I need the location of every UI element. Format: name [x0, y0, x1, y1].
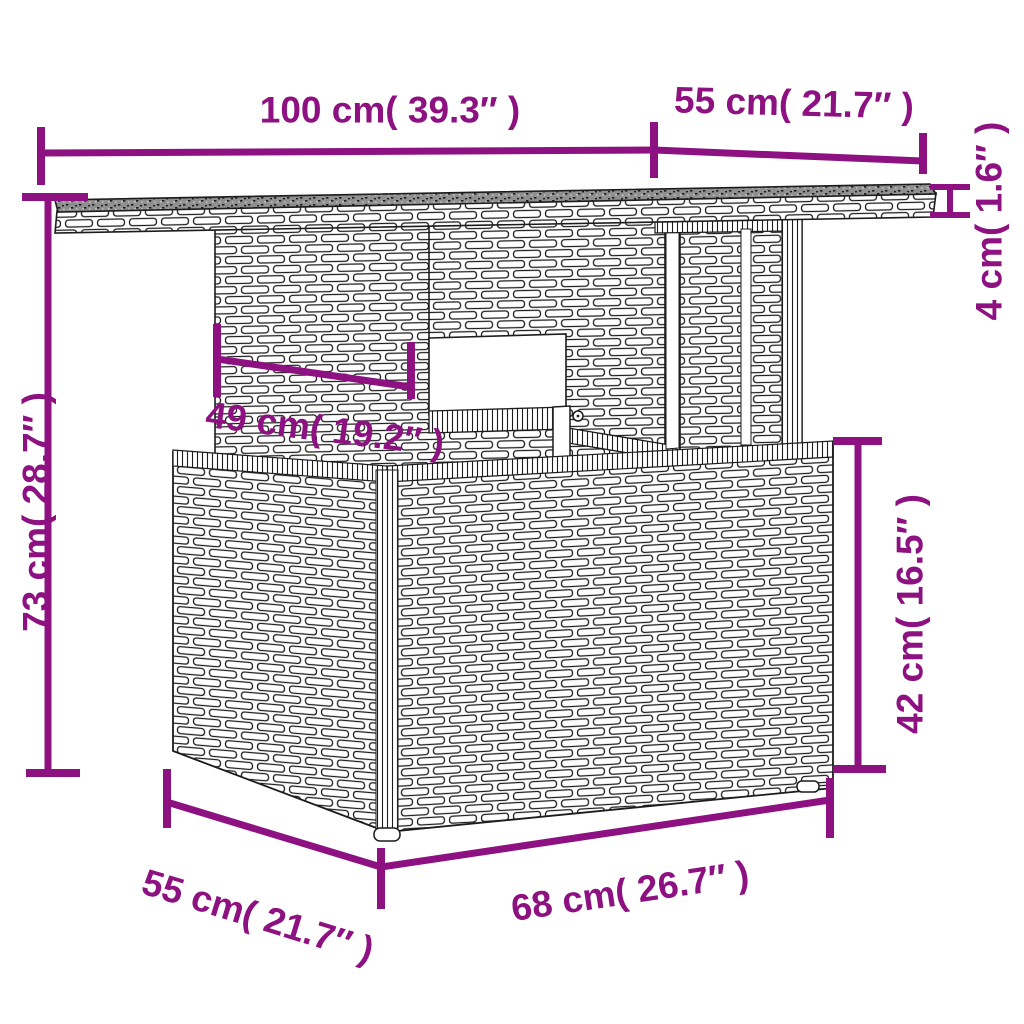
table-base — [173, 441, 833, 841]
dim-top-depth-label: 55 cm( 21.7″ ) — [674, 79, 915, 126]
dim-top-thickness-label: 4 cm( 1.6″ ) — [969, 122, 1010, 321]
base-corner-rounded-edge — [376, 470, 398, 832]
dim-total-height-label: 73 cm( 28.7″ ) — [16, 392, 57, 632]
dim-base-depth-label: 55 cm( 21.7″ ) — [137, 861, 378, 970]
dim-base-height — [833, 441, 886, 770]
dim-top-thickness — [930, 187, 970, 215]
base-front-face — [387, 443, 833, 832]
dim-top-length — [41, 122, 654, 185]
dim-base-height-label: 42 cm( 16.5″ ) — [890, 494, 931, 734]
pedestal-rail-bracket — [553, 406, 570, 461]
table-top — [55, 184, 936, 233]
base-foot-right — [797, 781, 819, 792]
base-foot-left — [374, 828, 400, 841]
pedestal-window-rail — [429, 407, 566, 433]
dim-top-depth — [654, 133, 923, 174]
pedestal-gap — [666, 220, 679, 449]
dim-base-length-label: 68 cm( 26.7″ ) — [508, 853, 751, 929]
table-diagram-svg: 100 cm( 39.3″ ) 55 cm( 21.7″ ) 4 cm( 1.6… — [0, 0, 1024, 1024]
pedestal-column-rounded-edge — [782, 217, 802, 452]
dim-top-length-label: 100 cm( 39.3″ ) — [260, 90, 520, 131]
pedestal-window — [429, 334, 566, 415]
base-left-face — [173, 452, 387, 832]
dimension-diagram: 100 cm( 39.3″ ) 55 cm( 21.7″ ) 4 cm( 1.6… — [0, 0, 1024, 1024]
pedestal-rail-screw-dot — [577, 415, 580, 418]
pedestal-column-slot — [741, 229, 751, 445]
